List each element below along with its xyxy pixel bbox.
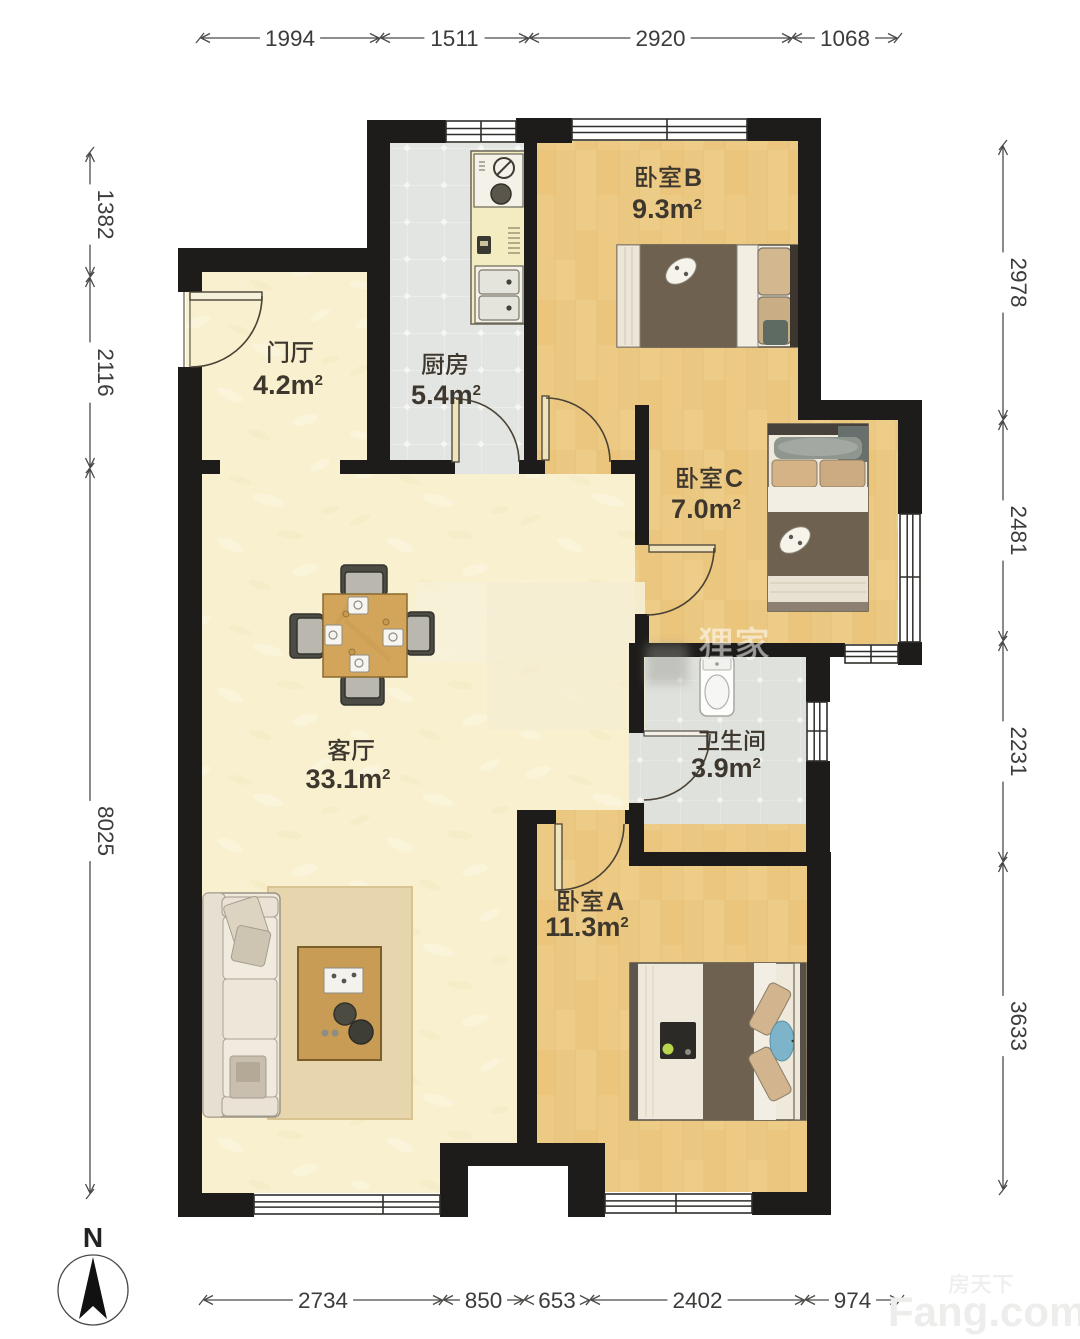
svg-text:1068: 1068: [820, 26, 870, 51]
svg-text:2734: 2734: [298, 1288, 348, 1313]
svg-text:11.3m2: 11.3m2: [545, 912, 628, 942]
svg-text:5.4m2: 5.4m2: [411, 380, 481, 410]
svg-text:3633: 3633: [1006, 1001, 1031, 1051]
svg-text:850: 850: [465, 1288, 503, 1313]
svg-text:C: C: [725, 465, 743, 493]
svg-text:8025: 8025: [93, 806, 118, 856]
svg-text:1382: 1382: [93, 189, 118, 239]
svg-text:2481: 2481: [1006, 505, 1031, 555]
svg-text:2978: 2978: [1006, 257, 1031, 307]
svg-text:3.9m2: 3.9m2: [691, 753, 761, 783]
svg-text:2402: 2402: [672, 1288, 722, 1313]
svg-text:7.0m2: 7.0m2: [671, 494, 741, 524]
svg-text:1511: 1511: [430, 26, 478, 51]
svg-text:1994: 1994: [265, 26, 315, 51]
svg-text:Fang.com: Fang.com: [888, 1288, 1080, 1335]
svg-text:N: N: [83, 1222, 103, 1253]
svg-text:974: 974: [834, 1288, 872, 1313]
svg-text:2116: 2116: [93, 348, 118, 396]
svg-text:4.2m2: 4.2m2: [253, 370, 323, 400]
svg-text:B: B: [684, 164, 702, 192]
svg-text:33.1m2: 33.1m2: [306, 764, 391, 794]
svg-text:653: 653: [538, 1288, 576, 1313]
svg-text:2231: 2231: [1006, 726, 1031, 776]
svg-text:2920: 2920: [635, 26, 685, 51]
svg-text:9.3m2: 9.3m2: [632, 194, 702, 224]
